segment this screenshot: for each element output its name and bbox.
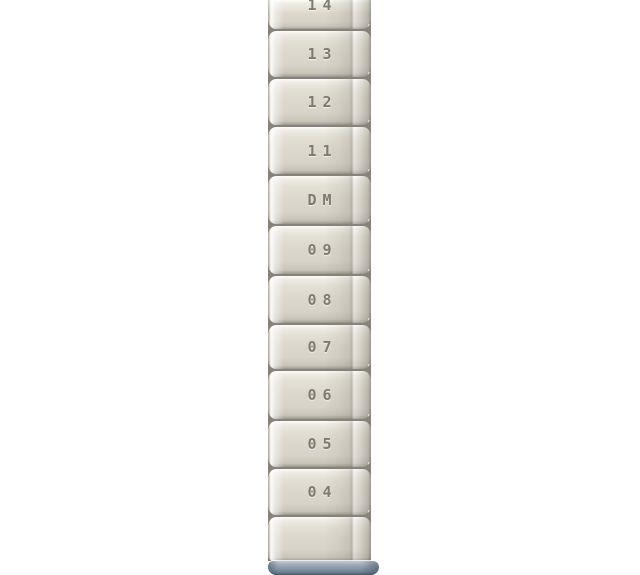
segment-label: DM <box>268 191 371 209</box>
segment-label: 04 <box>268 483 371 501</box>
post-segment: 13 <box>268 31 371 77</box>
post-segment: 05 <box>268 421 371 467</box>
shelving-post: 14 13 12 11 DM 09 08 07 06 05 04 <box>268 0 371 575</box>
segment-label: 06 <box>268 386 371 404</box>
post-segment: 07 <box>268 325 371 369</box>
post-segment: 12 <box>268 79 371 125</box>
segment-label: 12 <box>268 93 371 111</box>
segment-label: 11 <box>268 142 371 160</box>
segment-label: 07 <box>268 338 371 356</box>
post-segment: 06 <box>268 371 371 419</box>
post-segment: 04 <box>268 469 371 515</box>
post-foot-cap <box>268 561 379 575</box>
segment-label: 08 <box>268 291 371 309</box>
post-segment: 08 <box>268 276 371 323</box>
post-segment: 11 <box>268 127 371 174</box>
segment-label: 09 <box>268 241 371 259</box>
post-segment: 14 <box>268 0 371 29</box>
post-segment <box>268 517 371 561</box>
product-photo: 14 13 12 11 DM 09 08 07 06 05 04 <box>0 0 640 575</box>
post-segment: 09 <box>268 226 371 274</box>
post-segment: DM <box>268 176 371 224</box>
segment-label: 13 <box>268 45 371 63</box>
segment-label: 14 <box>268 0 371 14</box>
post-segments: 14 13 12 11 DM 09 08 07 06 05 04 <box>268 0 371 561</box>
segment-label: 05 <box>268 435 371 453</box>
